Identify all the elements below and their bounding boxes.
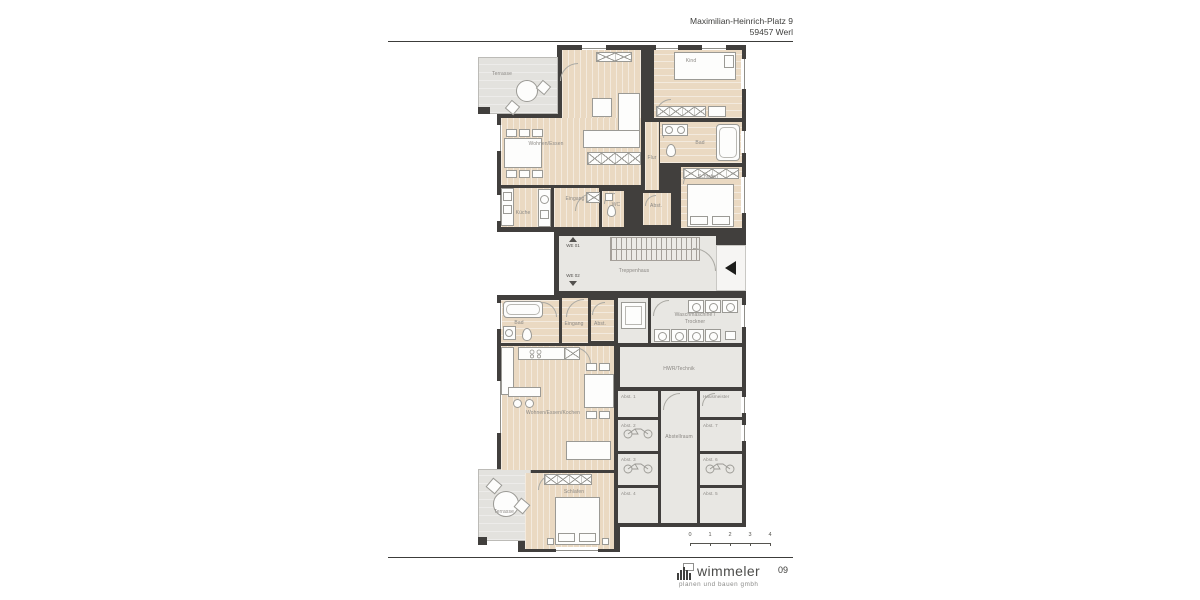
label-abst3: Abst. 3 xyxy=(621,457,636,462)
chair xyxy=(519,170,530,178)
bath-sink xyxy=(677,126,685,134)
floor-plan: WE 01 WE 02 xyxy=(478,45,750,557)
sofa xyxy=(566,441,611,460)
staircase xyxy=(610,237,700,261)
breakfast-bar xyxy=(508,387,541,397)
washing-machine-icon xyxy=(671,329,687,342)
label-schlafen-upper: Schlafen xyxy=(698,174,718,180)
chair xyxy=(519,129,530,137)
coffee-table xyxy=(592,98,612,117)
scale-tick-2: 2 xyxy=(728,532,731,538)
pillow xyxy=(724,55,734,68)
nightstand xyxy=(602,538,609,545)
terrace-table xyxy=(516,80,538,102)
window xyxy=(497,303,502,329)
label-wc: WC xyxy=(612,202,621,208)
kitchen-sink xyxy=(540,195,549,204)
header-address: Maximilian-Heinrich-Platz 9 59457 Werl xyxy=(690,16,793,37)
label-flur: Flur xyxy=(647,155,656,161)
we01-label: WE 01 xyxy=(560,243,586,248)
chair xyxy=(599,411,610,419)
label-abst1: Abst. 1 xyxy=(621,394,636,399)
logo-mark-icon xyxy=(677,563,694,580)
chair xyxy=(599,363,610,371)
label-hwr: HWR/Technik xyxy=(663,366,694,372)
room-abstellraum-corridor xyxy=(661,391,697,523)
washing-machine-icon xyxy=(722,300,738,313)
scale-bar: 0 1 2 3 4 xyxy=(686,532,778,550)
window xyxy=(497,125,502,151)
stool xyxy=(525,399,534,408)
label-eingang-upper: Eingang xyxy=(565,196,584,202)
sofa xyxy=(583,130,640,148)
stove-icon xyxy=(528,349,544,359)
chair xyxy=(506,129,517,137)
chair xyxy=(586,363,597,371)
window xyxy=(556,547,598,552)
label-bad-upper: Bad xyxy=(695,140,704,146)
label-kind: Kind xyxy=(686,58,696,64)
label-abst7: Abst. 7 xyxy=(703,423,718,428)
plan-sheet: Maximilian-Heinrich-Platz 9 59457 Werl xyxy=(0,0,1200,600)
sideboard xyxy=(596,52,632,62)
we02-marker: WE 02 xyxy=(560,273,586,289)
stair-rail xyxy=(611,249,699,250)
window xyxy=(582,45,606,50)
kitchen-appliance xyxy=(503,192,512,201)
chair xyxy=(506,170,517,178)
window xyxy=(741,305,746,327)
we01-marker: WE 01 xyxy=(560,237,586,253)
window xyxy=(741,177,746,213)
washing-machine-icon xyxy=(688,329,704,342)
chair xyxy=(532,170,543,178)
wardrobe xyxy=(587,152,641,165)
we02-direction-icon xyxy=(569,281,577,286)
label-abst4: Abst. 4 xyxy=(621,491,636,496)
wardrobe xyxy=(656,106,706,117)
address-line2: 59457 Werl xyxy=(690,27,793,38)
label-waschraum-2: Trockner xyxy=(685,319,705,325)
pillow xyxy=(690,216,708,225)
label-abst5: Abst. 5 xyxy=(703,491,718,496)
dining-table xyxy=(584,374,614,408)
page-number: 09 xyxy=(778,565,788,575)
label-wohnen-lower: Wohnen/Essen/Kochen xyxy=(526,410,580,416)
washing-machine-icon xyxy=(654,329,670,342)
terrace-post xyxy=(478,107,490,114)
logo-name: wimmeler xyxy=(697,563,760,579)
technik-equipment-inner xyxy=(625,306,642,325)
label-bad-lower: Bad xyxy=(514,320,523,326)
bath-sink xyxy=(505,329,513,337)
pillow xyxy=(712,216,730,225)
wc-sink xyxy=(605,193,613,201)
chair xyxy=(586,411,597,419)
utility-box xyxy=(725,331,736,340)
we01-direction-icon xyxy=(569,237,577,242)
address-line1: Maximilian-Heinrich-Platz 9 xyxy=(690,16,793,27)
label-eingang-lower: Eingang xyxy=(564,321,583,327)
cabinet xyxy=(708,106,726,117)
logo-tagline: planen und bauen gmbh xyxy=(679,581,758,588)
toilet xyxy=(666,144,676,157)
window xyxy=(741,131,746,153)
toilet xyxy=(522,328,532,341)
label-hausmeister: Hausmeister xyxy=(703,394,729,399)
footer-rule xyxy=(388,557,793,558)
pillow xyxy=(558,533,575,542)
label-abst6: Abst. 6 xyxy=(703,457,718,462)
kitchen-appliance xyxy=(540,210,549,219)
window xyxy=(741,397,746,413)
chair xyxy=(532,129,543,137)
label-abst2: Abst. 2 xyxy=(621,423,636,428)
pillow xyxy=(579,533,596,542)
bathtub xyxy=(716,124,740,161)
window xyxy=(702,45,726,50)
label-kueche: Küche xyxy=(516,210,531,216)
nightstand xyxy=(547,538,554,545)
terrace-post xyxy=(478,537,487,545)
scale-tick-1: 1 xyxy=(708,532,711,538)
window xyxy=(656,45,678,50)
technik-equipment xyxy=(621,302,646,329)
kitchen-appliance xyxy=(503,205,512,214)
label-waschraum-1: Waschmaschine / xyxy=(675,312,716,318)
kitchen-sink xyxy=(564,347,580,360)
label-abst-upper: Abst. xyxy=(650,203,662,209)
bicycle-icon xyxy=(622,461,654,474)
bicycle-icon xyxy=(704,461,736,474)
wardrobe xyxy=(544,474,592,485)
window xyxy=(741,425,746,441)
label-schlafen-lower: Schlafen xyxy=(564,489,584,495)
label-terrasse-lower: Terrasse xyxy=(494,509,514,515)
window xyxy=(741,59,746,89)
label-abst-lower: Abst. xyxy=(594,321,606,327)
stool xyxy=(513,399,522,408)
entrance-arrow-icon xyxy=(725,261,736,275)
label-terrasse-upper: Terrasse xyxy=(492,71,512,77)
scale-tick-0: 0 xyxy=(688,532,691,538)
scale-tick-3: 3 xyxy=(748,532,751,538)
label-treppenhaus: Treppenhaus xyxy=(619,268,649,274)
we02-label: WE 02 xyxy=(560,273,586,278)
scale-tick-4: 4 xyxy=(768,532,771,538)
cabinet xyxy=(586,192,600,203)
header-rule xyxy=(388,41,793,42)
washing-machine-icon xyxy=(705,329,721,342)
label-wohnen-essen: Wohnen/Essen xyxy=(528,141,563,147)
label-abstellraum: Abstellraum xyxy=(665,434,693,440)
bathtub xyxy=(503,301,543,318)
bath-sink xyxy=(665,126,673,134)
